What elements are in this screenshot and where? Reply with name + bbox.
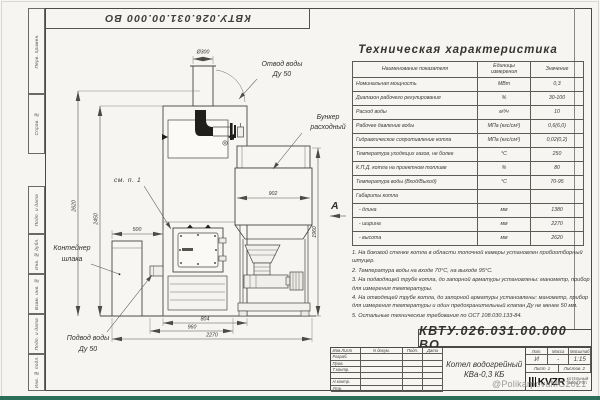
cell-name: Температура уходящих газов, не более [353,148,478,162]
table-row: - ширинамм2270 [353,218,584,232]
dim-height-bunker: 1960 [312,226,318,238]
mass-label: Масса [548,348,570,355]
door-handle [182,248,193,251]
mass-value: - [548,355,570,365]
table-row: Температура воды (Вход/Выход)°С70-95 [353,176,584,190]
note-3: 3. На подводящей трубе котла, до запорно… [352,276,594,293]
sheet-cell: Лист 1 [526,365,558,373]
cell-name: - высота [353,232,478,246]
note-4: 4. На отводящей трубе котла, до запорной… [352,294,594,311]
strip-label: Перв. примен. [34,34,39,68]
boiler-general-view-drawing: Ø300 2620 2450 500 902 1960 804 960 2270… [40,26,350,360]
label-slag-container-line1: Контейнер [53,244,90,252]
cell-units: °С [478,148,531,162]
bottom-color-bar [0,396,600,400]
cell-value: 70-95 [531,176,584,190]
screw-feeder [244,275,288,288]
sheet-label: Лист [534,366,546,371]
label-water-outlet-line1: Отвод воды [262,60,304,68]
cell-value [531,190,584,204]
chimney [190,66,216,106]
cell-value: 1380 [531,204,584,218]
dim-base-outer: 960 [188,325,197,331]
table-row: Габариты котла [353,190,584,204]
table-row: К.П.Д. котла на проектном топливе%80 [353,162,584,176]
technical-notes: 1. На боковой стенке котла в области топ… [352,249,594,321]
strip-label: Подп. и дата [34,318,39,350]
cell-units: МПа (кгс/см²) [478,120,531,134]
slag-container [112,241,142,316]
note-1: 1. На боковой стенке котла в области топ… [352,249,594,266]
table-row: - длинамм1380 [353,204,584,218]
strip-label: Подп. и дата [34,194,39,226]
lit-value: И [526,355,548,365]
scale-value: 1:15 [569,355,591,365]
title-block-signatures: Изм.Лист N докум. Подп. Дата Разраб. Про… [331,348,443,390]
cell-units [478,190,531,204]
label-view-a: А [330,200,339,212]
cell-units: % [478,92,531,106]
table-row: Рабочее давление водыМПа (кгс/см²)0,6(6,… [353,120,584,134]
cell-name: Температура воды (Вход/Выход) [353,176,478,190]
cell-value: 250 [531,148,584,162]
cell-units: МВт [478,78,531,92]
spec-table: Наименование показателя Единицы измерени… [352,61,584,246]
note-5: 5. Остальные технические требования по О… [352,312,594,320]
funnel-cone [245,245,280,263]
door-hinge-bottom [219,256,226,261]
cell-value: 80 [531,162,584,176]
label-bunker-line1: Бункер [317,114,340,121]
cell-name: Номинальная мощность [353,78,478,92]
strip-label: Справ. № [34,112,39,135]
ash-drawer [168,276,227,310]
dim-slag-offset: 500 [133,227,142,233]
cell-units: мм [478,218,531,232]
cell-value: 10 [531,106,584,120]
label-slag-container-line2: шлака [62,256,83,263]
label-water-inlet-line2: Ду 50 [78,346,97,353]
table-row: Номинальная мощностьМВт0,3 [353,78,584,92]
cell-name: - длина [353,204,478,218]
inverted-doc-number: КВТУ.026.031.00.000 ВО [104,12,251,24]
cell-units: % [478,162,531,176]
cell-name: Гидравлическое сопротивление котла [353,134,478,148]
dim-bunker-width: 902 [269,191,278,197]
col-header-value: Значение [531,62,584,78]
sheet-value: 1 [548,366,551,371]
label-see-note: см. п. 1 [114,177,141,184]
doc-title-line1: Котел водогрейный [446,360,522,369]
spec-header-row: Наименование показателя Единицы измерени… [353,62,584,78]
label-water-inlet-line1: Подвод воды [67,334,110,342]
note-2: 2. Температура воды на входе 70°С, на вы… [352,267,594,275]
strip-label: Инв. № подл. [34,356,39,388]
cell-units: мм [478,232,531,246]
table-row: - высотамм2620 [353,232,584,246]
cell-value: 0,3 [531,78,584,92]
sheets-label: Листов [564,366,581,371]
sheets-cell: Листов 2 [559,365,591,373]
dim-chimney-diameter: Ø300 [196,50,210,56]
cell-name: Рабочее давление воды [353,120,478,134]
col-header-units: Единицы измерения [478,62,531,78]
label-bunker-line2: расходный [309,123,345,131]
dim-height-total: 2620 [72,200,78,213]
cell-name: - ширина [353,218,478,232]
cell-name: К.П.Д. котла на проектном топливе [353,162,478,176]
strip-label: Инв. № дубл. [34,238,39,270]
col-header-name: Наименование показателя [353,62,478,78]
water-inlet-flange [150,266,163,276]
cell-units: °С [478,176,531,190]
cell-value: 0,02(0,2) [531,134,584,148]
doc-title-line2: КВа-0,3 КБ [464,370,504,379]
dim-base-inner: 804 [201,317,210,323]
cell-value: 0,6(6,0) [531,120,584,134]
door-hinge-top [219,238,226,243]
table-row: Гидравлическое сопротивление котлаМПа (к… [353,134,584,148]
lit-label: Лит. [526,348,548,355]
dim-height-boiler: 2450 [94,213,100,226]
cell-value: 2270 [531,218,584,232]
table-row: Температура уходящих газов, не более°С25… [353,148,584,162]
cell-units: м³/ч [478,106,531,120]
cell-name: Габариты котла [353,190,478,204]
cell-name: Диапазон рабочего регулирования [353,92,478,106]
sheets-value: 2 [582,366,585,371]
tb-row-utv: Утв. [331,386,361,392]
table-row: Диапазон рабочего регулирования%30-100 [353,92,584,106]
strip-label: Взам. инв. № [34,278,39,310]
label-water-outlet-line2: Ду 50 [272,71,291,78]
cell-value: 2620 [531,232,584,246]
doc-number-stamp: КВТУ.026.031.00.000 ВО [418,329,592,347]
cell-units: мм [478,204,531,218]
photo-watermark: @PolikarpovaMG2021 [492,379,586,389]
furnace-door [173,225,226,273]
scale-label: Масштаб [569,348,591,355]
table-row: Расход водым³/ч10 [353,106,584,120]
feeder-motor [290,272,303,290]
cell-value: 30-100 [531,92,584,106]
cell-name: Расход воды [353,106,478,120]
cell-units: МПа (кгс/см²) [478,134,531,148]
spec-table-title: Техническая характеристика [352,44,564,56]
dim-width-total: 2270 [205,333,218,339]
